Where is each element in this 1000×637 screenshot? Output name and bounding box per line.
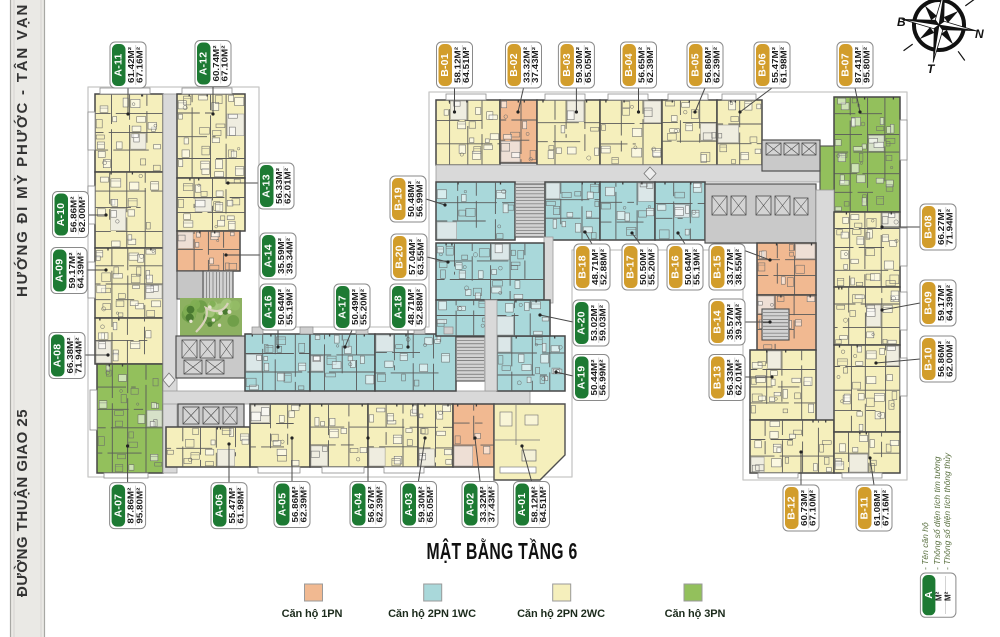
svg-text:53.02M²: 53.02M² (590, 305, 599, 341)
svg-text:50.48M²: 50.48M² (407, 181, 416, 217)
svg-text:56.67M²: 56.67M² (367, 486, 376, 522)
svg-text:62.01M²: 62.01M² (284, 168, 293, 204)
svg-text:B-01: B-01 (439, 53, 451, 77)
svg-text:35.57M²: 35.57M² (726, 304, 735, 340)
svg-text:B-14: B-14 (712, 310, 724, 334)
svg-text:A-03: A-03 (403, 493, 415, 517)
svg-text:57.04M²: 57.04M² (408, 239, 417, 275)
svg-text:67.10M²: 67.10M² (221, 45, 230, 81)
svg-text:HƯỚNG ĐI MỶ PHƯỚC - TÂN VẠN: HƯỚNG ĐI MỶ PHƯỚC - TÂN VẠN (13, 3, 31, 297)
svg-text:62.39M²: 62.39M² (300, 486, 309, 522)
svg-text:A-13: A-13 (261, 174, 273, 198)
svg-text:B-06: B-06 (757, 53, 769, 77)
svg-text:A-10: A-10 (55, 203, 67, 227)
svg-text:62.39M²: 62.39M² (376, 486, 385, 522)
svg-text:50.44M²: 50.44M² (590, 359, 599, 395)
svg-text:38.55M²: 38.55M² (735, 249, 744, 285)
svg-text:56.86M²: 56.86M² (291, 486, 300, 522)
svg-text:39.34M²: 39.34M² (286, 238, 295, 274)
svg-text:M²: M² (935, 591, 944, 601)
svg-text:A-16: A-16 (263, 295, 275, 319)
svg-text:B-12: B-12 (786, 496, 798, 520)
svg-text:B-03: B-03 (561, 53, 573, 77)
svg-text:55.20M²: 55.20M² (648, 249, 657, 285)
svg-text:B-16: B-16 (670, 255, 682, 279)
svg-text:33.32M²: 33.32M² (479, 486, 488, 522)
svg-text:A-06: A-06 (214, 494, 226, 518)
svg-text:67.10M²: 67.10M² (809, 490, 818, 526)
svg-text:A-04: A-04 (353, 493, 365, 517)
svg-text:B-05: B-05 (690, 53, 702, 77)
svg-text:A-17: A-17 (337, 295, 349, 319)
svg-text:64.39M²: 64.39M² (77, 252, 86, 288)
svg-text:55.47M²: 55.47M² (771, 47, 780, 83)
svg-text:56.99M²: 56.99M² (599, 359, 608, 395)
svg-text:B-15: B-15 (712, 255, 724, 279)
svg-text:87.41M²: 87.41M² (854, 47, 863, 83)
svg-text:65.05M²: 65.05M² (426, 486, 435, 522)
svg-text:62.00M²: 62.00M² (946, 341, 955, 377)
svg-text:Căn hộ 3PN: Căn hộ 3PN (665, 608, 726, 620)
svg-text:62.39M²: 62.39M² (713, 47, 722, 83)
svg-text:63.55M²: 63.55M² (417, 239, 426, 275)
svg-text:95.80M²: 95.80M² (135, 487, 144, 523)
svg-text:A-01: A-01 (516, 493, 528, 517)
svg-text:A-19: A-19 (576, 366, 588, 390)
svg-text:56.86M²: 56.86M² (69, 196, 78, 232)
svg-text:A: A (923, 591, 935, 599)
svg-text:B-20: B-20 (394, 245, 406, 269)
svg-text:56.99M²: 56.99M² (416, 181, 425, 217)
svg-text:65.05M²: 65.05M² (584, 47, 593, 83)
svg-text:B-13: B-13 (712, 366, 724, 390)
svg-text:56.33M²: 56.33M² (275, 168, 284, 204)
svg-text:59.17M²: 59.17M² (68, 252, 77, 288)
svg-text:60.73M²: 60.73M² (800, 490, 809, 526)
svg-text:61.08M²: 61.08M² (873, 490, 882, 526)
svg-text:66.38M²: 66.38M² (66, 337, 75, 373)
svg-text:48.71M²: 48.71M² (407, 289, 416, 325)
svg-text:A-08: A-08 (52, 344, 64, 368)
svg-text:B-08: B-08 (923, 215, 935, 239)
svg-text:71.94M²: 71.94M² (75, 337, 84, 373)
svg-text:50.49M²: 50.49M² (351, 289, 360, 325)
svg-text:59.03M²: 59.03M² (599, 305, 608, 341)
svg-text:A-11: A-11 (113, 54, 125, 77)
svg-text:64.51M²: 64.51M² (539, 486, 548, 522)
svg-text:60.74M²: 60.74M² (212, 45, 221, 81)
svg-text:71.94M²: 71.94M² (946, 209, 955, 245)
svg-text:50.50M²: 50.50M² (639, 249, 648, 285)
svg-text:52.88M²: 52.88M² (600, 249, 609, 285)
svg-text:B-04: B-04 (623, 53, 635, 77)
svg-text:67.16M²: 67.16M² (136, 47, 145, 83)
svg-text:B-10: B-10 (923, 347, 935, 371)
svg-text:48.71M²: 48.71M² (591, 249, 600, 285)
svg-text:- Thông số diện tích thông thủ: - Thông số diện tích thông thủy (942, 452, 952, 570)
svg-text:52.88M²: 52.88M² (416, 289, 425, 325)
svg-text:B-18: B-18 (577, 255, 589, 279)
svg-text:67.16M²: 67.16M² (882, 490, 891, 526)
svg-text:B-17: B-17 (625, 255, 637, 279)
svg-text:- Thông số diện tích tim tường: - Thông số diện tích tim tường (932, 456, 942, 570)
svg-text:50.64M²: 50.64M² (684, 249, 693, 285)
svg-text:A-09: A-09 (54, 259, 66, 283)
svg-text:95.80M²: 95.80M² (863, 47, 872, 83)
svg-text:M²: M² (944, 591, 953, 601)
svg-text:55.19M²: 55.19M² (286, 289, 295, 325)
svg-text:59.30M²: 59.30M² (417, 486, 426, 522)
svg-text:A-07: A-07 (112, 494, 124, 518)
svg-text:33.77M²: 33.77M² (726, 249, 735, 285)
svg-text:64.51M²: 64.51M² (462, 47, 471, 83)
svg-text:39.34M²: 39.34M² (735, 304, 744, 340)
svg-text:B: B (897, 15, 906, 29)
svg-text:35.59M²: 35.59M² (277, 238, 286, 274)
svg-text:50.64M²: 50.64M² (277, 289, 286, 325)
svg-text:55.19M²: 55.19M² (693, 249, 702, 285)
svg-text:A-05: A-05 (277, 493, 289, 517)
svg-text:61.42M²: 61.42M² (127, 47, 136, 83)
svg-text:ĐƯỜNG THUẬN GIAO 25: ĐƯỜNG THUẬN GIAO 25 (13, 409, 31, 597)
svg-text:58.12M²: 58.12M² (453, 47, 462, 83)
svg-text:59.17M²: 59.17M² (937, 285, 946, 321)
svg-text:B-02: B-02 (508, 53, 520, 77)
svg-text:56.86M²: 56.86M² (704, 47, 713, 83)
svg-text:56.65M²: 56.65M² (637, 47, 646, 83)
svg-text:64.39M²: 64.39M² (946, 285, 955, 321)
svg-text:Căn hộ 2PN 1WC: Căn hộ 2PN 1WC (388, 608, 476, 620)
svg-text:61.98M²: 61.98M² (780, 47, 789, 83)
svg-text:B-09: B-09 (923, 291, 935, 315)
svg-text:55.47M²: 55.47M² (228, 487, 237, 523)
svg-text:B-19: B-19 (393, 187, 405, 211)
svg-text:33.32M²: 33.32M² (522, 47, 531, 83)
svg-text:A-12: A-12 (198, 52, 210, 76)
svg-text:Căn hộ 1PN: Căn hộ 1PN (282, 608, 343, 620)
svg-text:62.39M²: 62.39M² (646, 47, 655, 83)
svg-text:62.01M²: 62.01M² (735, 359, 744, 395)
svg-text:B-11: B-11 (859, 497, 871, 520)
svg-text:B-07: B-07 (840, 53, 852, 77)
svg-text:56.33M²: 56.33M² (726, 359, 735, 395)
svg-text:58.12M²: 58.12M² (530, 486, 539, 522)
svg-text:- Tên căn hộ: - Tên căn hộ (920, 522, 930, 570)
svg-text:56.86M²: 56.86M² (937, 341, 946, 377)
svg-text:N: N (975, 27, 984, 41)
svg-text:A-20: A-20 (576, 311, 588, 335)
svg-text:Căn hộ 2PN 2WC: Căn hộ 2PN 2WC (517, 608, 605, 620)
svg-text:61.98M²: 61.98M² (237, 487, 246, 523)
svg-text:A-14: A-14 (263, 244, 275, 268)
svg-text:59.30M²: 59.30M² (575, 47, 584, 83)
svg-text:37.43M²: 37.43M² (488, 486, 497, 522)
svg-text:A-02: A-02 (465, 493, 477, 517)
svg-text:62.00M²: 62.00M² (78, 196, 87, 232)
svg-text:MẬT BẰNG TẦNG 6: MẬT BẰNG TẦNG 6 (427, 537, 578, 565)
svg-text:37.43M²: 37.43M² (531, 47, 540, 83)
svg-text:66.27M²: 66.27M² (937, 209, 946, 245)
svg-text:87.86M²: 87.86M² (126, 487, 135, 523)
svg-text:A-18: A-18 (393, 295, 405, 319)
svg-text:55.20M²: 55.20M² (360, 289, 369, 325)
